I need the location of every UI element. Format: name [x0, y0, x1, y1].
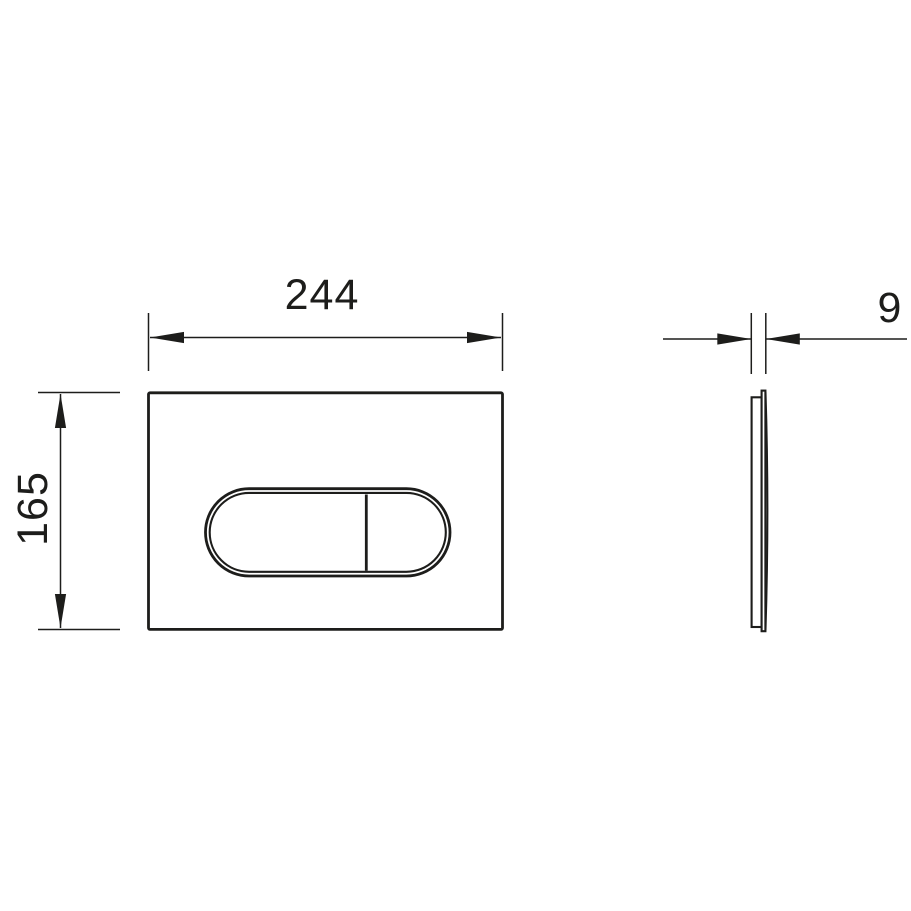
width-dimension-label: 244 — [285, 271, 360, 319]
side-profile-front-layer — [762, 391, 766, 632]
thickness-dimension: 9 — [663, 284, 907, 374]
thickness-arrow-right-icon — [766, 333, 800, 344]
height-arrow-top-icon — [55, 394, 66, 428]
front-view — [149, 393, 503, 630]
side-profile-back-layer — [752, 397, 762, 627]
thickness-dimension-label: 9 — [878, 284, 903, 332]
width-dimension: 244 — [149, 271, 503, 371]
flush-button-inner-outline — [210, 493, 446, 572]
technical-drawing-page: 244 165 9 — [0, 0, 911, 911]
flush-plate-dimension-drawing: 244 165 9 — [0, 0, 911, 911]
height-arrow-bottom-icon — [55, 594, 66, 628]
height-dimension-label: 165 — [9, 471, 57, 546]
width-arrow-right-icon — [467, 332, 501, 343]
width-arrow-left-icon — [150, 332, 184, 343]
side-view — [752, 391, 768, 632]
thickness-arrow-left-icon — [717, 333, 751, 344]
height-dimension: 165 — [9, 393, 120, 630]
